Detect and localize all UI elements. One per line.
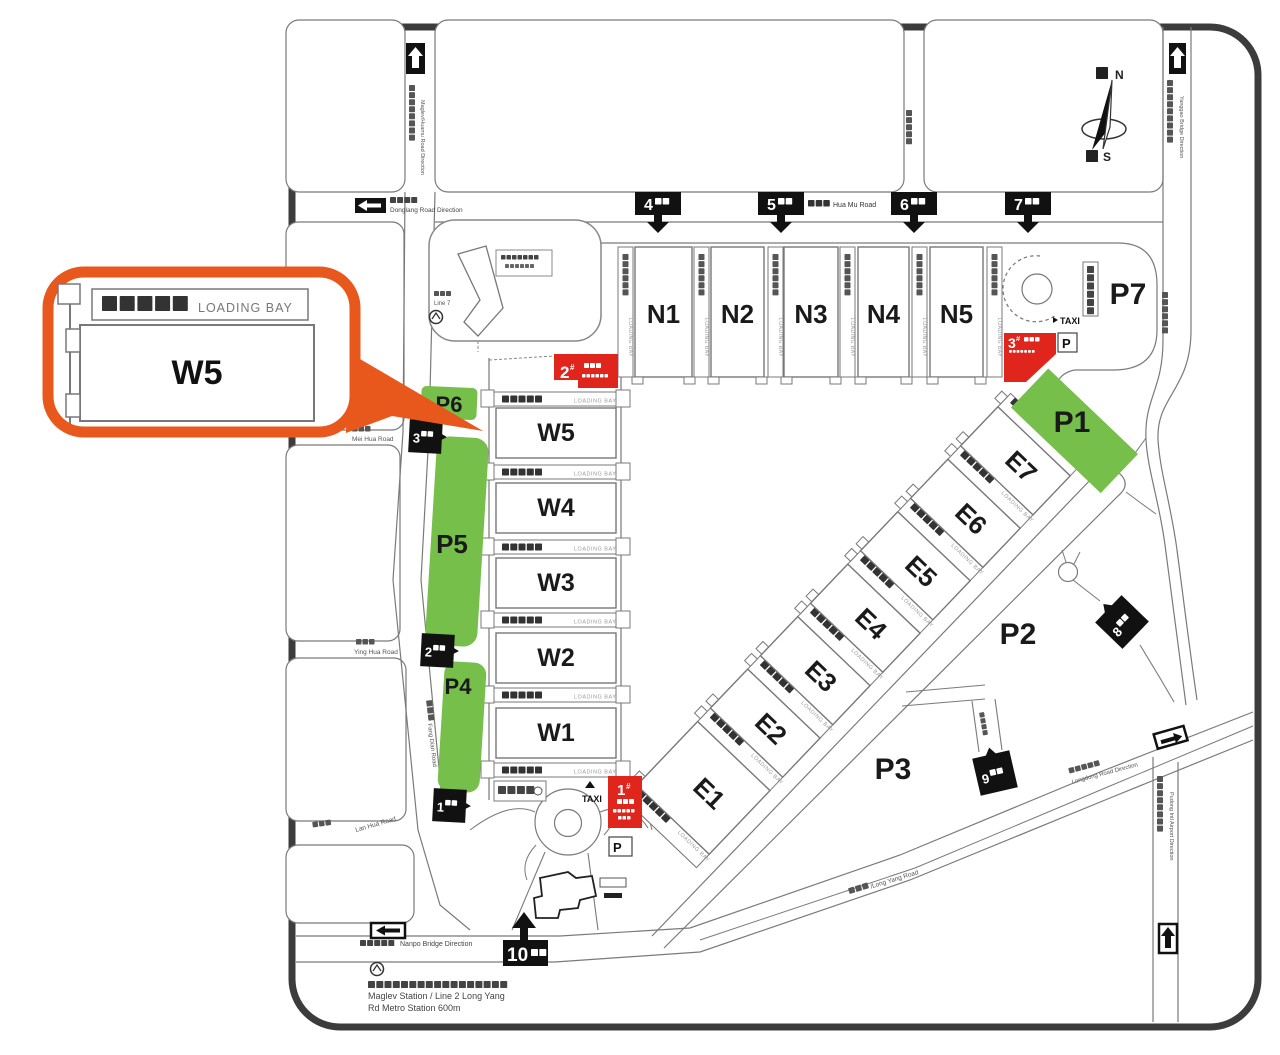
svg-text:LOADING BAY: LOADING BAY [777, 318, 783, 357]
svg-text:LOADING BAY: LOADING BAY [574, 620, 616, 626]
svg-text:LOADING BAY: LOADING BAY [849, 318, 855, 357]
svg-text:P3: P3 [875, 753, 912, 786]
svg-text:N4: N4 [867, 299, 901, 329]
svg-text:N: N [1115, 68, 1124, 82]
svg-text:LOADING BAY: LOADING BAY [921, 318, 927, 357]
svg-text:W1: W1 [537, 719, 575, 747]
svg-text:LOADING BAY: LOADING BAY [574, 695, 616, 701]
svg-text:#: # [626, 782, 631, 791]
svg-text:Yanggao Bridge Direction: Yanggao Bridge Direction [1178, 96, 1184, 158]
svg-text:Donglang Road Direction: Donglang Road Direction [390, 207, 463, 214]
svg-text:5: 5 [767, 197, 776, 214]
svg-text:N5: N5 [940, 299, 973, 329]
svg-text:P: P [1062, 336, 1071, 351]
svg-text:Pudong Intl Airport Direction: Pudong Intl Airport Direction [1168, 792, 1174, 860]
svg-text:LOADING BAY: LOADING BAY [996, 318, 1002, 357]
svg-text:Maglev Station / Line 2 Long Y: Maglev Station / Line 2 Long Yang [368, 991, 505, 1001]
svg-text:TAXI: TAXI [582, 794, 602, 804]
svg-text:Line 7: Line 7 [434, 301, 451, 307]
svg-text:LOADING BAY: LOADING BAY [574, 399, 616, 405]
svg-text:W5: W5 [172, 354, 223, 392]
svg-text:Maglev/Huamu Road Direction: Maglev/Huamu Road Direction [419, 100, 425, 175]
svg-text:P7: P7 [1110, 278, 1147, 311]
svg-text:W5: W5 [537, 419, 575, 447]
svg-text:7: 7 [1014, 197, 1023, 214]
svg-text:6: 6 [900, 197, 909, 214]
svg-text:Ying Hua Road: Ying Hua Road [354, 649, 398, 656]
svg-text:N1: N1 [647, 299, 680, 329]
svg-text:2: 2 [560, 363, 569, 382]
svg-text:W3: W3 [537, 569, 575, 597]
svg-text:W2: W2 [537, 644, 575, 672]
svg-text:10: 10 [507, 945, 528, 966]
svg-text:Rd Metro Station 600m: Rd Metro Station 600m [368, 1003, 461, 1013]
svg-text:LOADING BAY: LOADING BAY [574, 547, 616, 553]
svg-text:4: 4 [644, 197, 653, 214]
svg-text:N3: N3 [794, 299, 827, 329]
svg-text:TAXI: TAXI [1060, 316, 1080, 326]
svg-text:P1: P1 [1054, 406, 1091, 439]
svg-text:P5: P5 [436, 529, 468, 559]
svg-text:N2: N2 [721, 299, 754, 329]
svg-text:Nanpo Bridge Direction: Nanpo Bridge Direction [400, 941, 472, 948]
svg-text:3: 3 [1008, 335, 1016, 351]
svg-text:LOADING BAY: LOADING BAY [574, 472, 616, 478]
svg-text:P: P [613, 840, 622, 855]
svg-text:Mei Hua Road: Mei Hua Road [352, 436, 394, 443]
svg-text:LOADING BAY: LOADING BAY [627, 318, 633, 357]
svg-text:3: 3 [412, 430, 420, 445]
svg-text:LOADING BAY: LOADING BAY [198, 301, 293, 315]
svg-text:1: 1 [617, 782, 625, 799]
svg-text:LOADING BAY: LOADING BAY [703, 318, 709, 357]
svg-text:2: 2 [424, 644, 432, 659]
svg-text:#: # [570, 363, 575, 372]
svg-text:S: S [1103, 150, 1111, 164]
svg-text:LOADING BAY: LOADING BAY [574, 770, 616, 776]
svg-text:1: 1 [436, 799, 444, 814]
svg-text:P4: P4 [445, 674, 473, 699]
svg-text:W4: W4 [537, 494, 575, 522]
svg-text:Hua Mu Road: Hua Mu Road [833, 202, 876, 209]
svg-text:P2: P2 [1000, 618, 1037, 651]
